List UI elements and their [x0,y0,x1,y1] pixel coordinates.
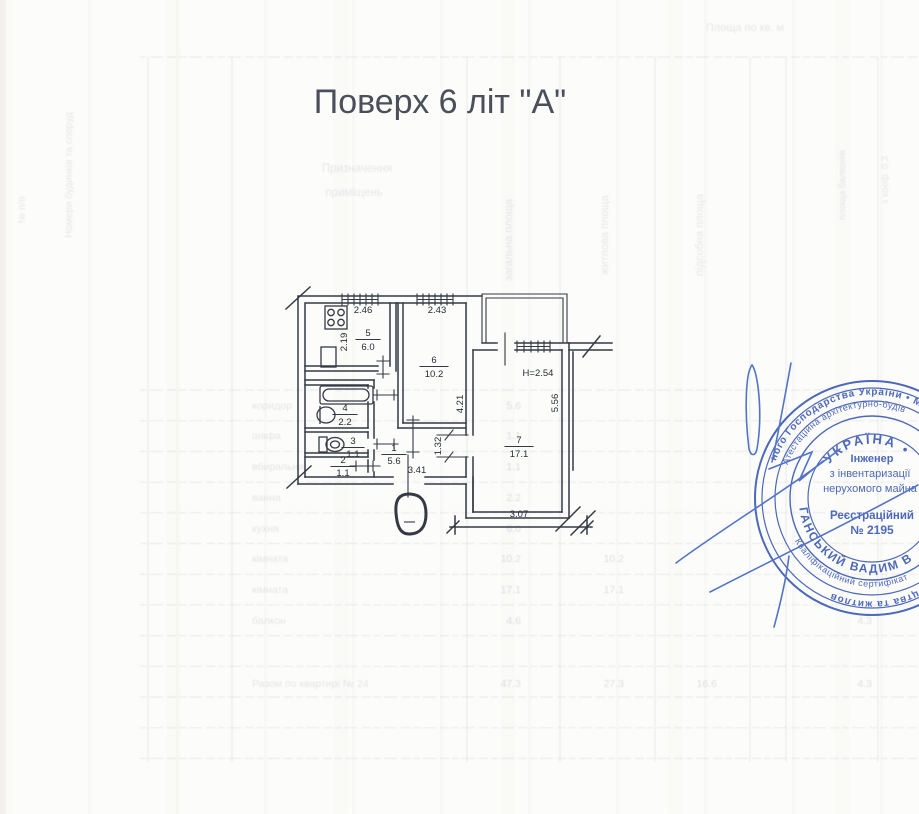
ghost-row-name: кімната [252,584,288,596]
ghost-value: 17.1 [501,584,522,596]
ghost-value: 4.3 [857,615,872,627]
room-label-kitchen: 5 6.0 [356,328,380,353]
room-label-bath: 4 2.2 [333,403,357,428]
bathtub-icon [320,386,373,404]
ghost-col-left-margin: Номери будинків та споруд [63,112,75,238]
stamp-line-4: Реєстраційний [830,510,914,522]
svg-text:5: 5 [365,328,370,339]
page-title: Поверх 6 літ "А" [314,83,567,121]
ghost-value: 17.1 [604,584,625,596]
stamp-line-1: Інженер [851,453,894,465]
svg-text:6.0: 6.0 [361,342,374,353]
svg-text:4: 4 [342,403,347,414]
ghost-col-aux: підсобна площа [694,193,706,276]
ghost-row-name: кімната [252,553,288,565]
dim-door7: 1.32 [433,437,444,456]
svg-text:2: 2 [340,455,345,466]
ghost-row-name: вбиральня [252,461,304,473]
ghost-row-name: шафа [252,430,281,442]
dim-room6-width: 2.43 [428,305,447,316]
svg-text:6: 6 [431,355,436,366]
svg-text:1.1: 1.1 [336,468,349,479]
ghost-col-balcony: площа балконів [837,150,848,220]
ghost-total-value: 27.3 [604,678,625,690]
svg-text:1: 1 [391,443,396,454]
ghost-row-name: кухня [252,523,279,535]
ghost-header-area: Площа по кв. м [706,22,784,34]
ghost-col-total: загальна площа [503,198,515,281]
ghost-table: Площа по кв. м Призначення приміщень заг… [17,22,919,762]
dim-room6-height: 4.21 [455,395,466,414]
ghost-header-purpose-2: приміщень [325,187,383,199]
stamp-line-2: з інвентаризації [830,468,911,480]
ghost-value: 10.2 [604,553,625,565]
ghost-value: 6.0 [506,523,521,535]
ghost-col-coef: з коеф. 0,3 [880,156,891,204]
ghost-value: 5.6 [506,400,521,412]
svg-text:1.1: 1.1 [346,449,359,460]
ghost-total-value: 47.3 [501,678,522,690]
svg-text:2.2: 2.2 [338,417,351,428]
ghost-value: 4.6 [506,615,521,627]
dim-kitchen-width: 2.46 [354,305,373,316]
ghost-col-num: № п/п [17,196,28,223]
stamp-center-text: Інженер з інвентаризації нерухомого майн… [823,453,918,537]
balcony [482,294,567,343]
ghost-value: 1.1 [506,461,521,473]
dim-ceiling-height: Н=2.54 [523,368,554,379]
dim-room7-width: 3.07 [510,509,529,520]
stove-icon [325,306,347,329]
dim-room7-height: 5.56 [550,394,561,413]
svg-text:7: 7 [516,435,521,446]
stamp-line-5: № 2195 [850,523,894,537]
ghost-row-name: ванна [252,492,281,504]
washbasin-icon [317,406,335,424]
svg-text:3: 3 [350,436,355,447]
ghost-value: 2.2 [506,492,521,504]
ghost-total-label: Разом по квартирі № 24 [252,678,369,690]
room-label-hall: 1 5.6 [382,443,406,467]
engineer-stamp: ного Господарства України • Міністе вниц… [676,363,919,627]
ghost-col-living: житлова площа [599,194,611,275]
ghost-row-name: коридор [252,400,292,412]
ghost-header-purpose-1: Призначення [322,163,392,175]
room-label-room6: 6 10.2 [420,355,448,380]
ghost-total-value: 4.3 [857,678,872,690]
svg-text:10.2: 10.2 [425,369,444,380]
entrance-door-symbol [396,494,426,534]
svg-text:5.6: 5.6 [387,456,400,467]
dim-kitchen-height: 2.19 [339,333,350,352]
toilet-icon [319,437,344,452]
svg-text:17.1: 17.1 [510,449,529,460]
ghost-total-value: 16.6 [697,678,718,690]
dim-hall-width: 3.41 [408,465,427,476]
floor-plan: 5 6.0 6 10.2 4 2.2 3 1.1 2 [286,287,612,535]
dimension-labels: 2.46 2.43 2.19 4.21 3.41 1.32 5.56 3.07 … [339,305,561,520]
ghost-value: 10.2 [501,553,522,565]
document-canvas: Площа по кв. м Призначення приміщень заг… [0,0,919,814]
ghost-row-name: балкон [252,615,286,627]
sink-icon [321,347,336,367]
